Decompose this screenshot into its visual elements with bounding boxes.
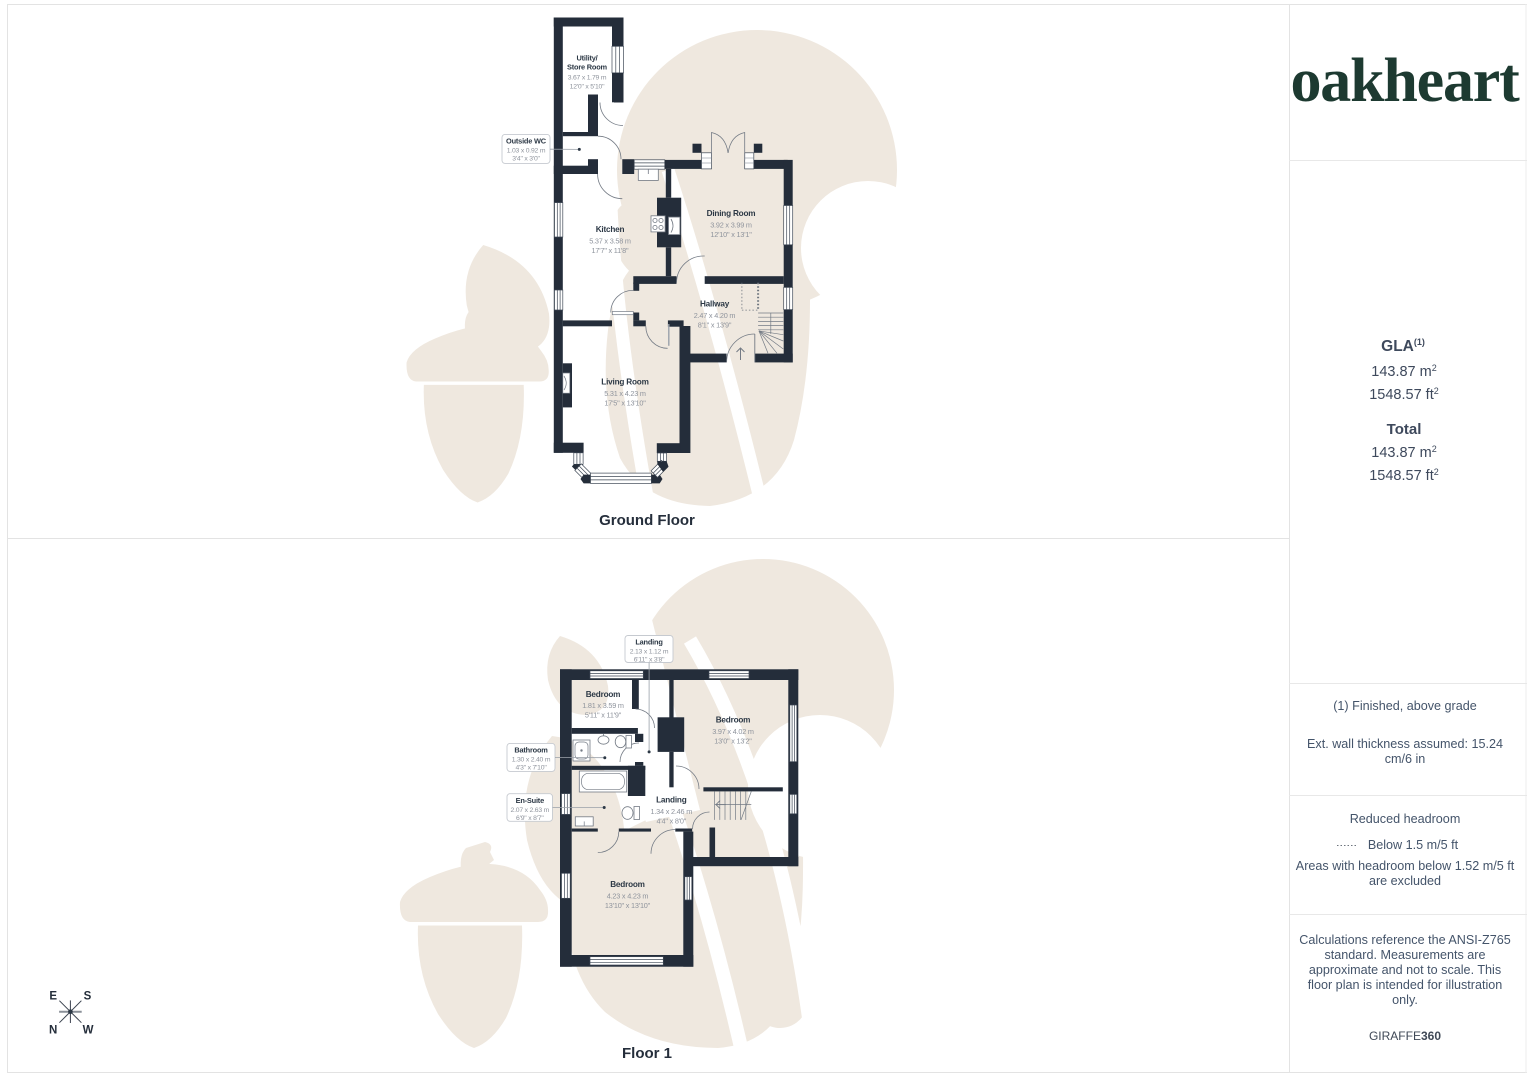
svg-text:Utility/: Utility/ [577, 54, 598, 63]
svg-text:3.67 x 1.79 m: 3.67 x 1.79 m [568, 75, 607, 82]
svg-text:Below 1.5 m/5 ft: Below 1.5 m/5 ft [1368, 838, 1459, 852]
svg-text:Hallway: Hallway [700, 300, 730, 309]
svg-text:1548.57 ft2: 1548.57 ft2 [1369, 467, 1439, 484]
svg-text:Bathroom: Bathroom [514, 746, 548, 755]
svg-text:N: N [49, 1025, 57, 1037]
svg-text:12'10" x 13'1": 12'10" x 13'1" [710, 230, 752, 239]
svg-text:Ext. wall thickness assumed: 1: Ext. wall thickness assumed: 15.24 [1307, 737, 1503, 751]
svg-text:En-Suite: En-Suite [516, 796, 544, 805]
svg-text:3.97 x 4.02 m: 3.97 x 4.02 m [712, 727, 754, 736]
svg-text:floor plan is intended for ill: floor plan is intended for illustration [1308, 978, 1503, 992]
svg-text:13'10" x 13'10": 13'10" x 13'10" [605, 901, 651, 910]
svg-text:12'0" x 5'10": 12'0" x 5'10" [570, 84, 605, 91]
svg-text:Store Room: Store Room [567, 63, 608, 72]
svg-text:are excluded: are excluded [1369, 874, 1441, 888]
svg-text:17'5" x 13'10": 17'5" x 13'10" [604, 399, 646, 408]
svg-text:2.13 x 1.12 m: 2.13 x 1.12 m [630, 649, 669, 656]
svg-text:2.47 x 4.20 m: 2.47 x 4.20 m [694, 311, 736, 320]
svg-text:17'7" x 11'8": 17'7" x 11'8" [592, 246, 629, 255]
svg-text:Calculations reference the ANS: Calculations reference the ANSI-Z765 [1299, 933, 1510, 947]
svg-text:E: E [49, 991, 57, 1003]
svg-text:cm/6 in: cm/6 in [1385, 752, 1426, 766]
svg-text:Landing: Landing [656, 796, 687, 805]
svg-text:6'9" x 8'7": 6'9" x 8'7" [516, 815, 544, 822]
svg-text:Total: Total [1387, 421, 1422, 438]
svg-text:W: W [83, 1025, 94, 1037]
svg-text:5.31 x 4.23 m: 5.31 x 4.23 m [604, 389, 646, 398]
svg-text:4.23 x 4.23 m: 4.23 x 4.23 m [607, 892, 649, 901]
svg-text:4'3" x 7'10": 4'3" x 7'10" [515, 765, 547, 772]
svg-text:Bedroom: Bedroom [716, 716, 751, 725]
svg-text:only.: only. [1392, 993, 1418, 1007]
svg-text:1.03 x 0.92 m: 1.03 x 0.92 m [507, 148, 546, 155]
svg-text:S: S [84, 991, 92, 1003]
svg-text:GLA(1): GLA(1) [1381, 337, 1425, 355]
svg-text:Outside WC: Outside WC [506, 137, 547, 146]
svg-text:Dining Room: Dining Room [707, 209, 756, 218]
svg-text:Reduced headroom: Reduced headroom [1350, 812, 1461, 826]
svg-text:143.87 m2: 143.87 m2 [1371, 363, 1436, 380]
svg-text:Landing: Landing [635, 638, 663, 647]
svg-text:Living Room: Living Room [601, 378, 648, 387]
svg-text:approximate and not to scale.: approximate and not to scale. This [1309, 963, 1501, 977]
svg-text:Floor 1: Floor 1 [622, 1045, 672, 1062]
svg-text:13'0" x 13'2": 13'0" x 13'2" [714, 737, 752, 746]
svg-text:Bedroom: Bedroom [610, 880, 645, 889]
svg-text:standard. Measurements are: standard. Measurements are [1324, 948, 1485, 962]
svg-text:1.34 x 2.46 m: 1.34 x 2.46 m [650, 807, 692, 816]
svg-text:8'1" x 13'9": 8'1" x 13'9" [698, 321, 732, 330]
svg-text:2.07 x 2.63 m: 2.07 x 2.63 m [511, 807, 550, 814]
svg-text:1548.57 ft2: 1548.57 ft2 [1369, 386, 1439, 403]
svg-text:5'11" x 11'9": 5'11" x 11'9" [585, 711, 622, 720]
svg-text:3'4" x 3'0": 3'4" x 3'0" [512, 156, 540, 163]
svg-text:Kitchen: Kitchen [596, 225, 625, 234]
svg-text:Areas with headroom below 1.52: Areas with headroom below 1.52 m/5 ft [1296, 859, 1515, 873]
svg-text:Bedroom: Bedroom [586, 690, 621, 699]
svg-text:Ground Floor: Ground Floor [599, 512, 695, 529]
svg-text:4'4" x 8'0": 4'4" x 8'0" [656, 817, 686, 826]
svg-text:3.92 x 3.99 m: 3.92 x 3.99 m [710, 221, 752, 230]
svg-text:(1) Finished, above grade: (1) Finished, above grade [1333, 699, 1477, 713]
svg-text:GIRAFFE360: GIRAFFE360 [1369, 1029, 1441, 1043]
svg-text:5.37 x 3.58 m: 5.37 x 3.58 m [589, 237, 631, 246]
svg-text:1.81 x 3.59 m: 1.81 x 3.59 m [582, 701, 624, 710]
svg-text:oakheart: oakheart [1290, 47, 1520, 115]
svg-text:1.30 x 2.40 m: 1.30 x 2.40 m [512, 757, 551, 764]
svg-text:143.87 m2: 143.87 m2 [1371, 444, 1436, 461]
svg-text:6'11" x 3'8": 6'11" x 3'8" [634, 657, 665, 664]
